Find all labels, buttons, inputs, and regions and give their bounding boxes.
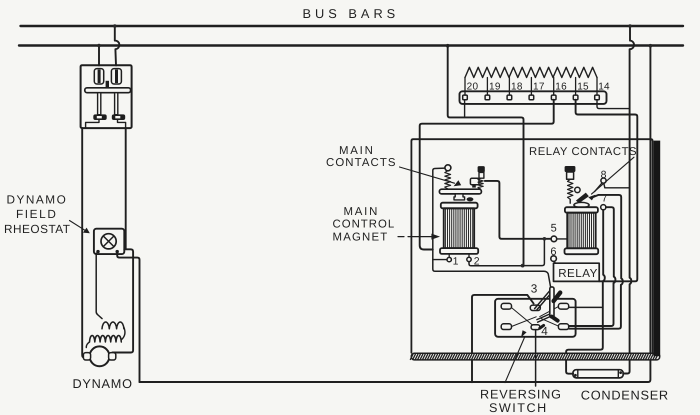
svg-text:4: 4 — [541, 324, 548, 338]
svg-text:RELAY CONTACTS: RELAY CONTACTS — [529, 146, 637, 158]
svg-text:19: 19 — [489, 82, 501, 93]
svg-text:RELAY: RELAY — [558, 267, 598, 280]
svg-text:MAIN: MAIN — [344, 206, 380, 218]
svg-text:REVERSING: REVERSING — [480, 387, 562, 401]
svg-text:SWITCH: SWITCH — [489, 401, 548, 415]
svg-text:DYNAMO: DYNAMO — [73, 377, 133, 391]
svg-text:CONDENSER: CONDENSER — [581, 387, 669, 402]
svg-text:RHEOSTAT: RHEOSTAT — [4, 222, 70, 236]
svg-text:3: 3 — [531, 281, 538, 295]
svg-text:BUS BARS: BUS BARS — [303, 6, 400, 21]
svg-text:1: 1 — [453, 255, 459, 267]
svg-text:5: 5 — [551, 223, 557, 235]
svg-text:20: 20 — [467, 82, 479, 93]
svg-text:MAGNET: MAGNET — [333, 232, 389, 244]
svg-text:16: 16 — [555, 82, 567, 93]
svg-text:17: 17 — [533, 82, 545, 93]
svg-text:15: 15 — [577, 82, 589, 93]
svg-text:14: 14 — [598, 82, 610, 93]
svg-text:FIELD: FIELD — [16, 207, 57, 221]
svg-text:CONTACTS: CONTACTS — [326, 157, 397, 169]
svg-text:CONTROL: CONTROL — [333, 219, 396, 231]
svg-text:18: 18 — [511, 82, 523, 93]
svg-text:DYNAMO: DYNAMO — [7, 193, 68, 207]
svg-text:MAIN: MAIN — [339, 145, 375, 157]
svg-text:8: 8 — [601, 169, 607, 181]
svg-text:6: 6 — [550, 246, 556, 258]
